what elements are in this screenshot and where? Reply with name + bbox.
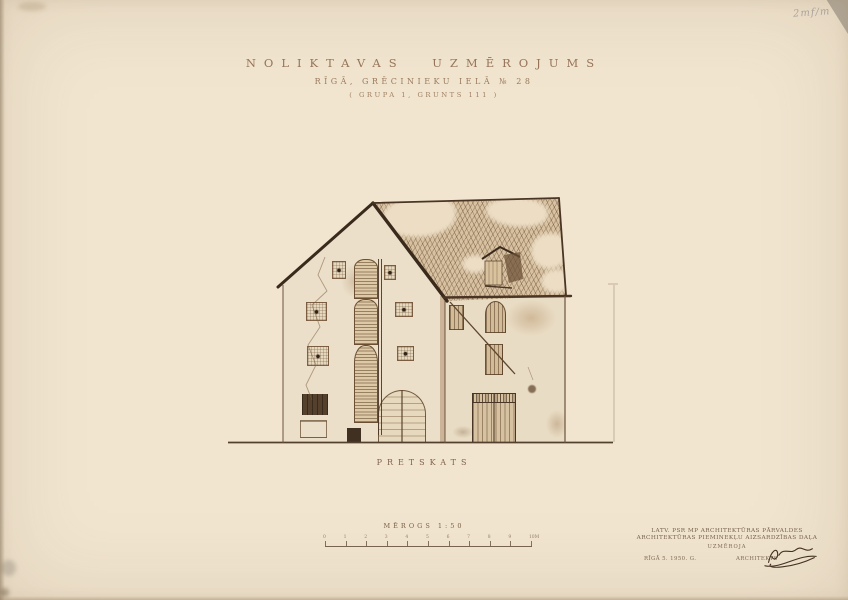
- sheet-left-edge-shadow: [0, 0, 5, 600]
- scale-bar: 0 1 2 3 4 5 6 7 8 9 10M: [325, 535, 532, 547]
- scale-tick-label: 0: [323, 535, 326, 540]
- title-block: NOLIKTAVAS UZMĒROJUMS RĪGĀ, GRĒCINIEKU I…: [0, 56, 848, 99]
- elevation-linework: [228, 195, 618, 445]
- scale-tick-label: 2: [364, 535, 367, 540]
- sheet-subtitle-address: RĪGĀ, GRĒCINIEKU IELĀ № 28: [0, 77, 848, 86]
- elevation-drawing: [228, 195, 618, 445]
- sheet-subtitle-parcel: ( GRUPA 1, GRUNTS 111 ): [0, 91, 848, 99]
- credit-bottom-row: RĪGĀ 5. 1950. G. ARCHITEKTS: [636, 550, 818, 576]
- view-caption: PRETSKATS: [0, 458, 848, 467]
- roof-edge-lines: [278, 198, 571, 301]
- scale-tick-label: 5: [426, 535, 429, 540]
- hoist-channel-lines: [379, 259, 382, 435]
- sheet-bottom-edge-shadow: [0, 596, 848, 600]
- scale-tick-label: 7: [467, 535, 470, 540]
- scale-tick-label: 1: [344, 535, 347, 540]
- credit-block: LATV. PSR MP ARCHITEKTŪRAS PĀRVALDES ARC…: [636, 528, 818, 576]
- scale-tick-label: 4: [405, 535, 408, 540]
- scale-tick-label: 3: [385, 535, 388, 540]
- signature-scribble-icon: [761, 539, 822, 573]
- place-date: RĪGĀ 5. 1950. G.: [644, 556, 696, 562]
- scale-tick-label: 6: [447, 535, 450, 540]
- scale-tick-label: 9: [508, 535, 511, 540]
- scale-tick-label: 8: [488, 535, 491, 540]
- scale-tick-label: 10M: [529, 535, 539, 540]
- wall-edge-lines: [283, 284, 618, 443]
- faint-stamp-smudge: [18, 2, 46, 11]
- sheet-title: NOLIKTAVAS UZMĒROJUMS: [0, 56, 848, 70]
- scale-baseline: [325, 546, 532, 547]
- drawing-sheet: NOLIKTAVAS UZMĒROJUMS RĪGĀ, GRĒCINIEKU I…: [0, 0, 848, 600]
- dormer-hatch: [482, 247, 523, 288]
